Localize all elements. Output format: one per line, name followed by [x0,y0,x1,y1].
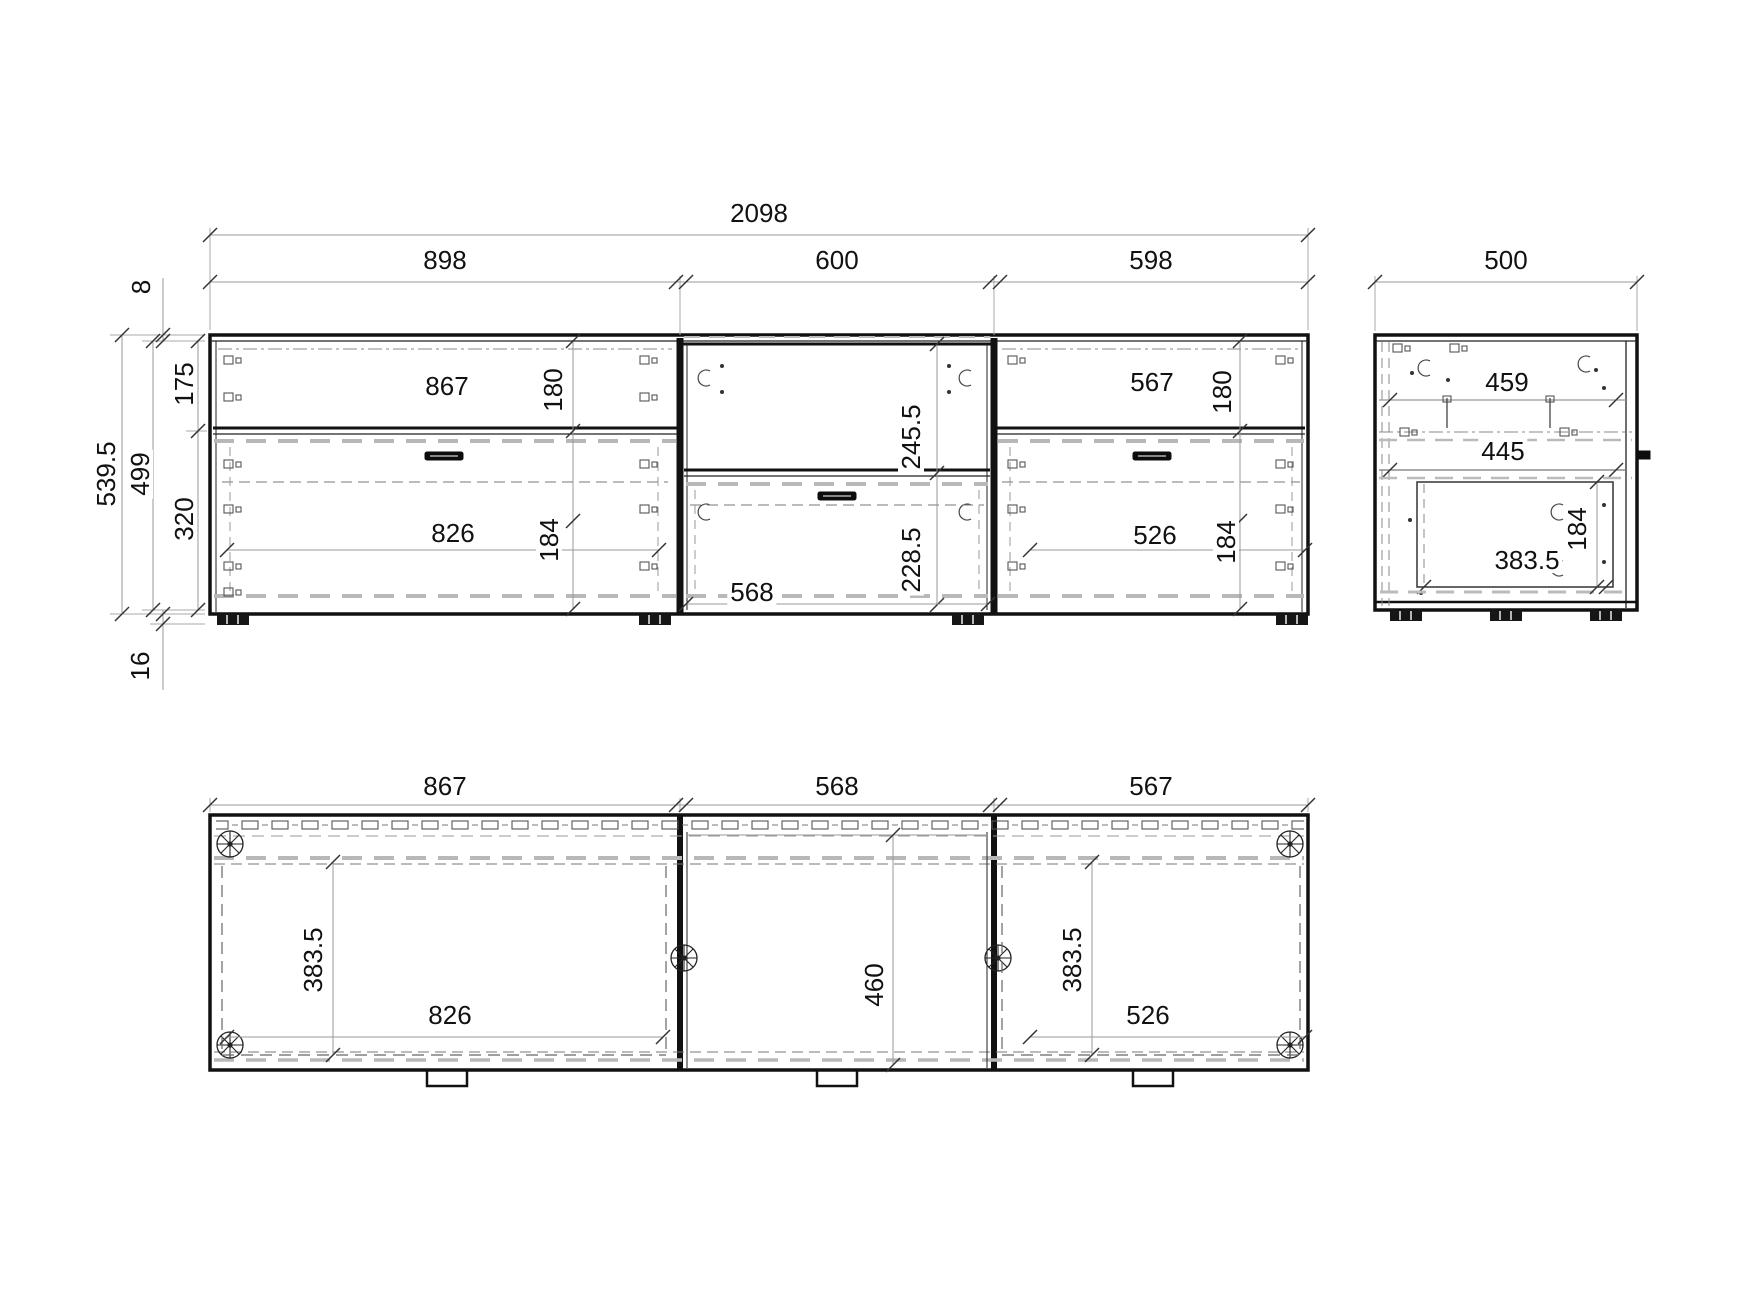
dim-front-left-drawer-height: 184 [536,515,562,564]
plan-view [203,798,1315,1086]
drawing-linework [0,0,1747,1310]
dim-side-shelf-depth: 445 [1478,438,1527,464]
dim-front-left-drawer-width: 826 [428,520,477,546]
front-view [110,228,1315,690]
dim-front-right-flap-height: 180 [1209,367,1235,416]
dim-plan-right-opening: 567 [1126,773,1175,799]
dim-side-overall-depth: 500 [1481,247,1530,273]
dim-front-right-drawer-width: 526 [1130,522,1179,548]
dim-front-left-opening-width: 867 [422,373,471,399]
dim-front-overall-height: 539.5 [93,438,119,509]
dim-plan-middle-inner-depth: 460 [861,960,887,1009]
dim-plan-middle-opening: 568 [812,773,861,799]
dim-side-drawer-height: 184 [1564,504,1590,553]
dim-front-middle-opening-height: 245.5 [898,401,924,472]
dim-front-carcass-height: 499 [127,449,153,498]
dim-front-lower-opening: 320 [171,494,197,543]
technical-drawing-canvas: 2098 898 600 598 500 8 539.5 499 175 320… [0,0,1747,1310]
dim-front-left-flap-height: 180 [540,365,566,414]
dim-front-middle-drawer-opening: 228.5 [898,524,924,595]
dim-front-right-opening-width: 567 [1127,369,1176,395]
side-handle [1637,451,1650,459]
dim-front-foot-height: 16 [127,649,153,684]
dim-front-section-middle: 600 [812,247,861,273]
dim-plan-right-door-depth: 383.5 [1059,924,1085,995]
dim-front-middle-drawer-width: 568 [727,579,776,605]
dim-front-section-right: 598 [1126,247,1175,273]
front-middle-section [679,337,995,612]
dim-front-section-left: 898 [420,247,469,273]
dim-plan-right-drawer-width: 526 [1123,1002,1172,1028]
dim-front-overall-width: 2098 [727,200,791,226]
dim-side-top-inner-depth: 459 [1482,369,1531,395]
dim-front-right-drawer-height: 184 [1213,517,1239,566]
dim-front-top-thickness: 8 [128,277,154,297]
dim-plan-left-opening: 867 [420,773,469,799]
dim-plan-left-door-depth: 383.5 [300,924,326,995]
dim-plan-left-drawer-width: 826 [425,1002,474,1028]
dim-side-drawer-depth: 383.5 [1491,547,1562,573]
dim-front-upper-opening: 175 [171,359,197,408]
